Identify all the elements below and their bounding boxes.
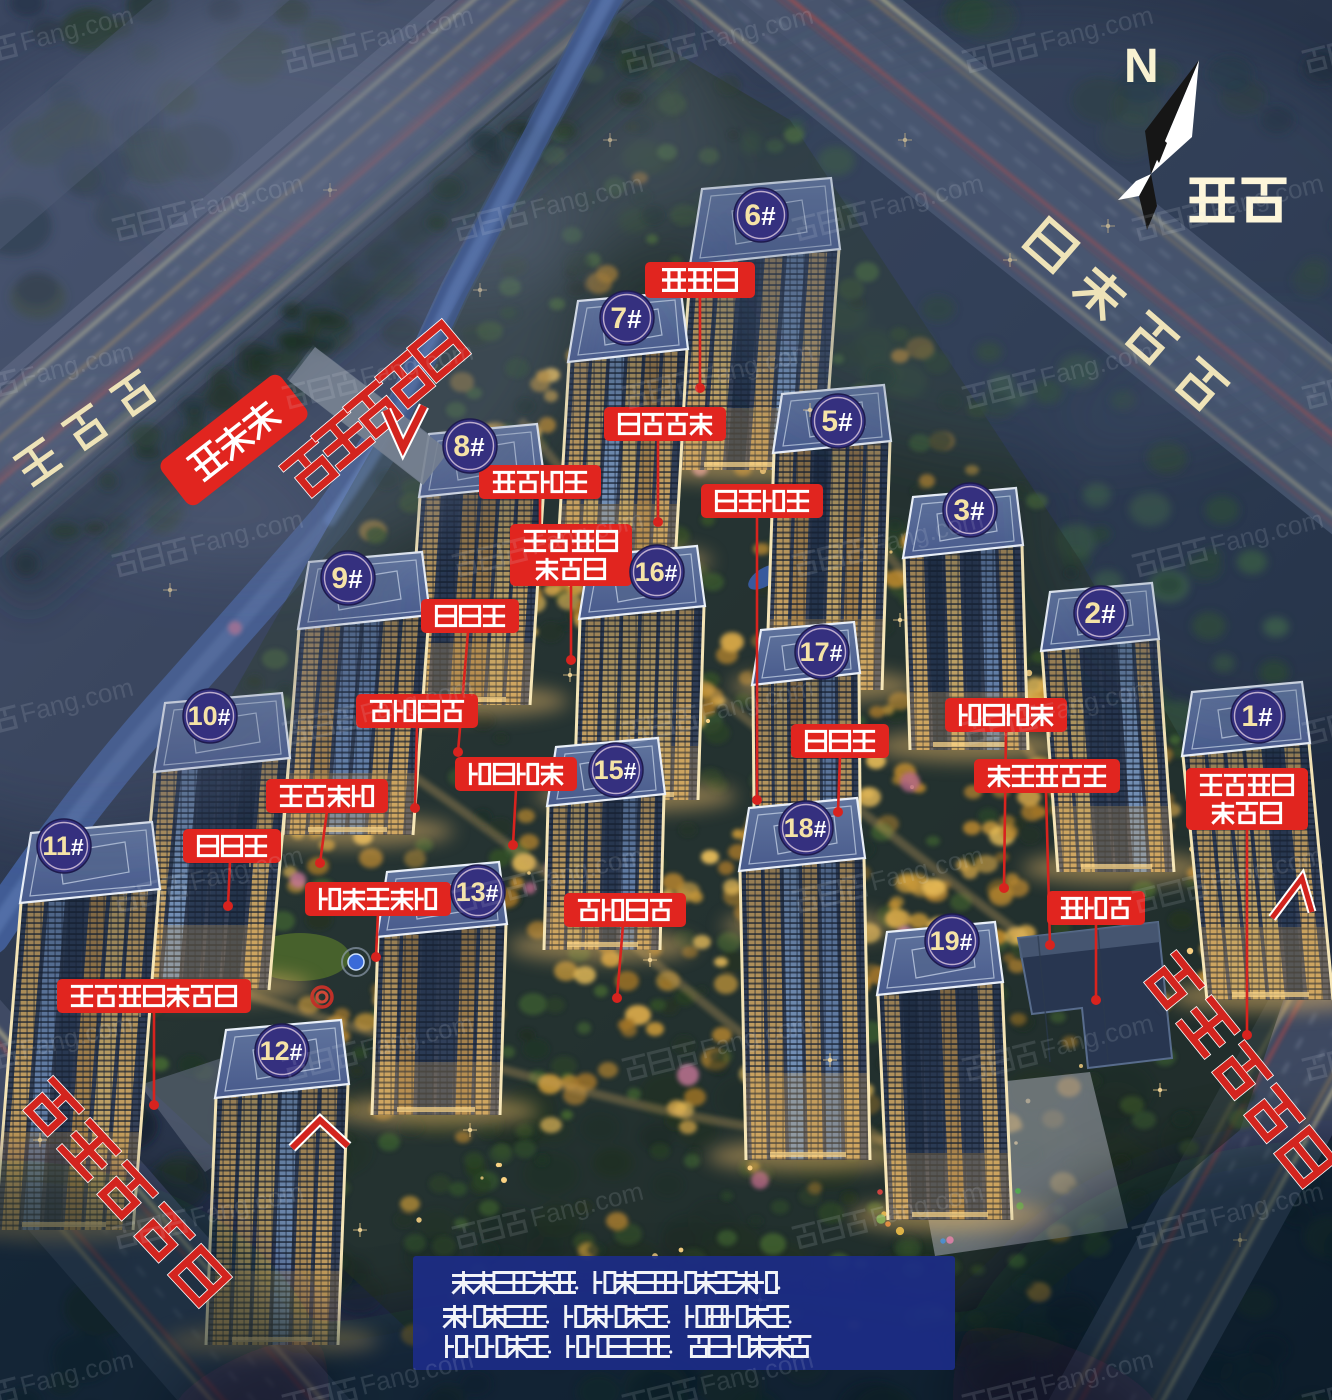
svg-text:15#: 15# xyxy=(594,755,637,785)
svg-text:10#: 10# xyxy=(188,701,231,731)
svg-text:1#: 1# xyxy=(1241,700,1273,733)
svg-text:6#: 6# xyxy=(744,199,776,232)
svg-text:12#: 12# xyxy=(260,1036,303,1066)
svg-text:19#: 19# xyxy=(930,926,973,956)
svg-text:11#: 11# xyxy=(42,831,84,861)
svg-text:N: N xyxy=(1124,40,1159,93)
svg-text:7#: 7# xyxy=(610,302,642,335)
svg-text:17#: 17# xyxy=(800,637,843,667)
svg-text:16#: 16# xyxy=(635,557,678,587)
svg-text:5#: 5# xyxy=(821,405,853,438)
svg-text:8#: 8# xyxy=(453,430,485,463)
svg-text:18#: 18# xyxy=(784,813,827,843)
svg-text:9#: 9# xyxy=(331,562,363,595)
svg-text:2#: 2# xyxy=(1084,597,1116,630)
